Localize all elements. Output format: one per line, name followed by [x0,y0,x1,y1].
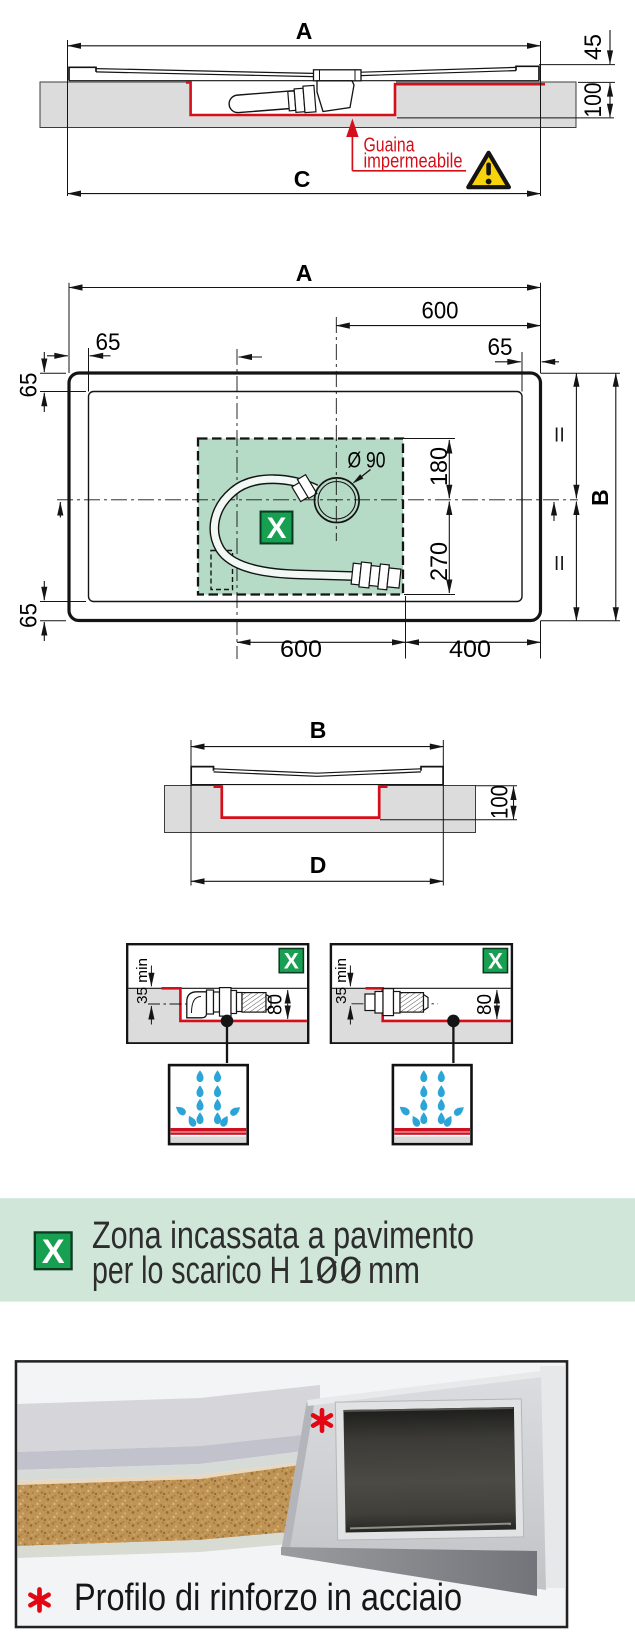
svg-text:mm: mm [368,1250,420,1292]
svg-text:80: 80 [474,994,496,1015]
svg-text:65: 65 [16,373,43,398]
svg-text:35 min: 35 min [333,958,350,1004]
svg-text:per lo scarico H 1: per lo scarico H 1 [92,1250,314,1292]
svg-text:A: A [296,18,313,44]
svg-text:600: 600 [280,636,322,663]
svg-text:impermeabile: impermeabile [364,151,463,173]
svg-text:65: 65 [96,329,121,356]
svg-text:80: 80 [265,994,287,1015]
svg-text:35 min: 35 min [134,958,151,1004]
svg-text:B: B [310,717,327,743]
svg-text:Profilo di rinforzo in acciaio: Profilo di rinforzo in acciaio [74,1577,462,1619]
svg-text:D: D [310,852,327,878]
svg-text:65: 65 [488,334,513,361]
svg-text:Ø 90: Ø 90 [348,448,386,473]
svg-text:100: 100 [580,83,607,118]
svg-text:100: 100 [487,785,514,819]
svg-text:45: 45 [580,34,607,60]
svg-text:180: 180 [426,447,453,486]
svg-text:C: C [294,166,311,192]
svg-text:A: A [296,260,313,286]
svg-text:65: 65 [16,603,43,628]
svg-text:600: 600 [422,298,459,325]
svg-text:270: 270 [426,542,453,581]
svg-text:B: B [587,489,613,506]
svg-text:400: 400 [449,636,491,663]
